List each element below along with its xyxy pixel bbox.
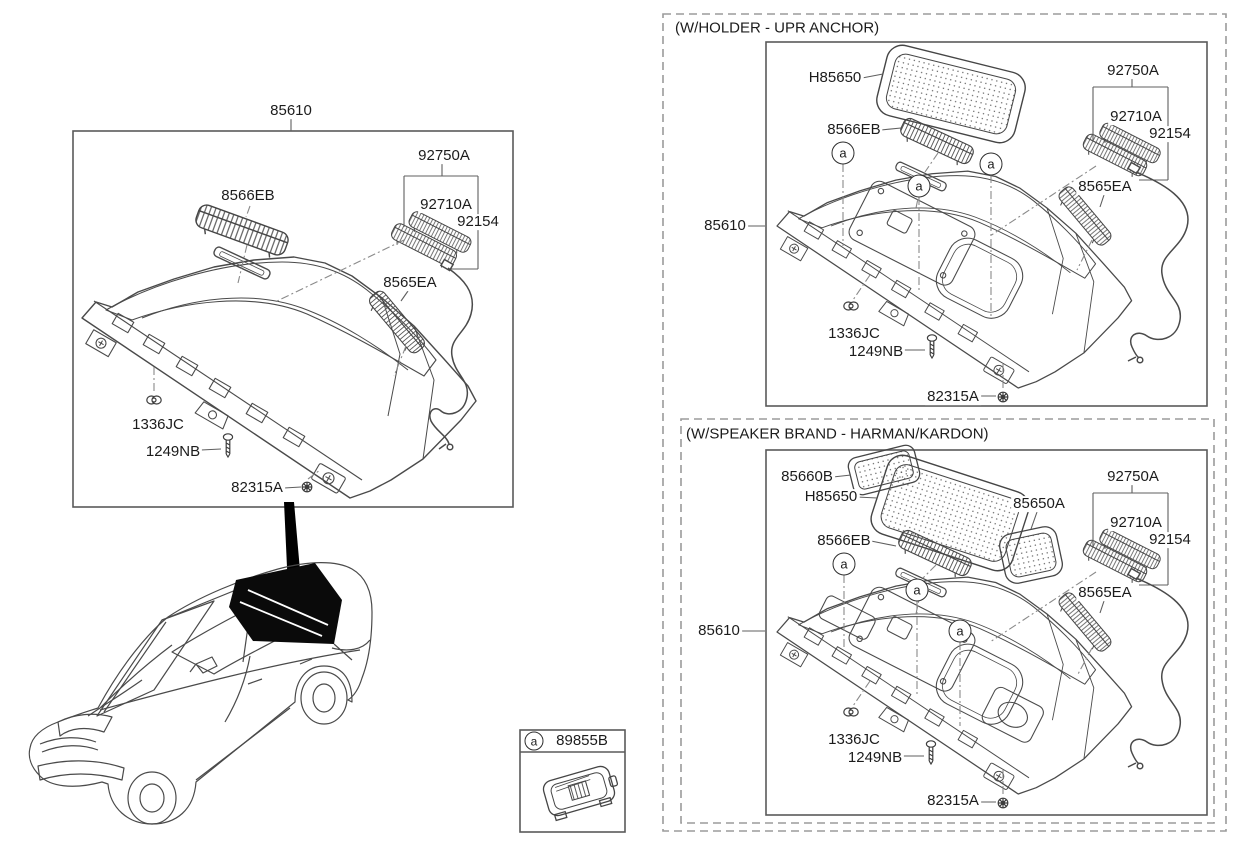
part-label-lamp-assembly-s1: 92750A: [1105, 469, 1161, 485]
main-title: 85610: [268, 103, 314, 119]
marker-a-s1-1: a: [833, 553, 856, 576]
part-label-clip-s1: 1336JC: [826, 732, 882, 748]
diagram-artwork: [0, 0, 1247, 848]
part-label-lamp-holder-main: 92154: [455, 214, 501, 230]
legend-marker-a: a: [525, 732, 544, 751]
part-label-grille-slat-main: 8566EB: [219, 188, 276, 204]
marker-a-s1-2: a: [906, 579, 929, 602]
marker-a-s0-1: a: [832, 142, 855, 165]
part-label-grille-slat-s1: 8566EB: [815, 533, 872, 549]
part-label-lamp-holder-s0: 92154: [1147, 126, 1193, 142]
section-header-harman-kardon: (W/SPEAKER BRAND - HARMAN/KARDON): [683, 426, 992, 443]
part-label-lamp-holder-s1: 92154: [1147, 532, 1193, 548]
part-label-grille-slat-s0: 8566EB: [825, 122, 882, 138]
part-label-screw-main: 1249NB: [144, 444, 202, 460]
part-label-clip-s0: 1336JC: [826, 326, 882, 342]
part-label-side-grille-s0: 8565EA: [1076, 179, 1133, 195]
section-header-upr-anchor: (W/HOLDER - UPR ANCHOR): [672, 20, 882, 37]
marker-a-s1-3: a: [949, 620, 972, 643]
part-label-left-grille-s1: 85660B: [779, 469, 835, 485]
part-label-clip-main: 1336JC: [130, 417, 186, 433]
part-label-bolt-main: 82315A: [229, 480, 285, 496]
part-label-lamp-s1: 92710A: [1108, 515, 1164, 531]
part-label-tray-s1: 85610: [696, 623, 742, 639]
part-label-center-grille-s1: H85650: [803, 489, 860, 505]
part-label-screw-s1: 1249NB: [846, 750, 904, 766]
part-label-bolt-s1: 82315A: [925, 793, 981, 809]
part-label-bolt-s0: 82315A: [925, 389, 981, 405]
part-label-center-grille-s0: H85650: [807, 70, 864, 86]
part-label-lamp-main: 92710A: [418, 197, 474, 213]
parts-diagram-page: 85610 8566EB 92750A 92710A 92154 8565EA …: [0, 0, 1247, 848]
marker-a-s0-3: a: [980, 153, 1003, 176]
part-label-side-grille-main: 8565EA: [381, 275, 438, 291]
marker-a-s0-2: a: [908, 175, 931, 198]
part-label-lamp-assembly-s0: 92750A: [1105, 63, 1161, 79]
part-label-lamp-s0: 92710A: [1108, 109, 1164, 125]
part-label-right-grille-s1: 85650A: [1011, 496, 1067, 512]
part-label-side-grille-s1: 8565EA: [1076, 585, 1133, 601]
legend-part-number: 89855B: [554, 733, 610, 749]
part-label-screw-s0: 1249NB: [847, 344, 905, 360]
part-label-lamp-assembly-main: 92750A: [416, 148, 472, 164]
part-label-tray-s0: 85610: [702, 218, 748, 234]
